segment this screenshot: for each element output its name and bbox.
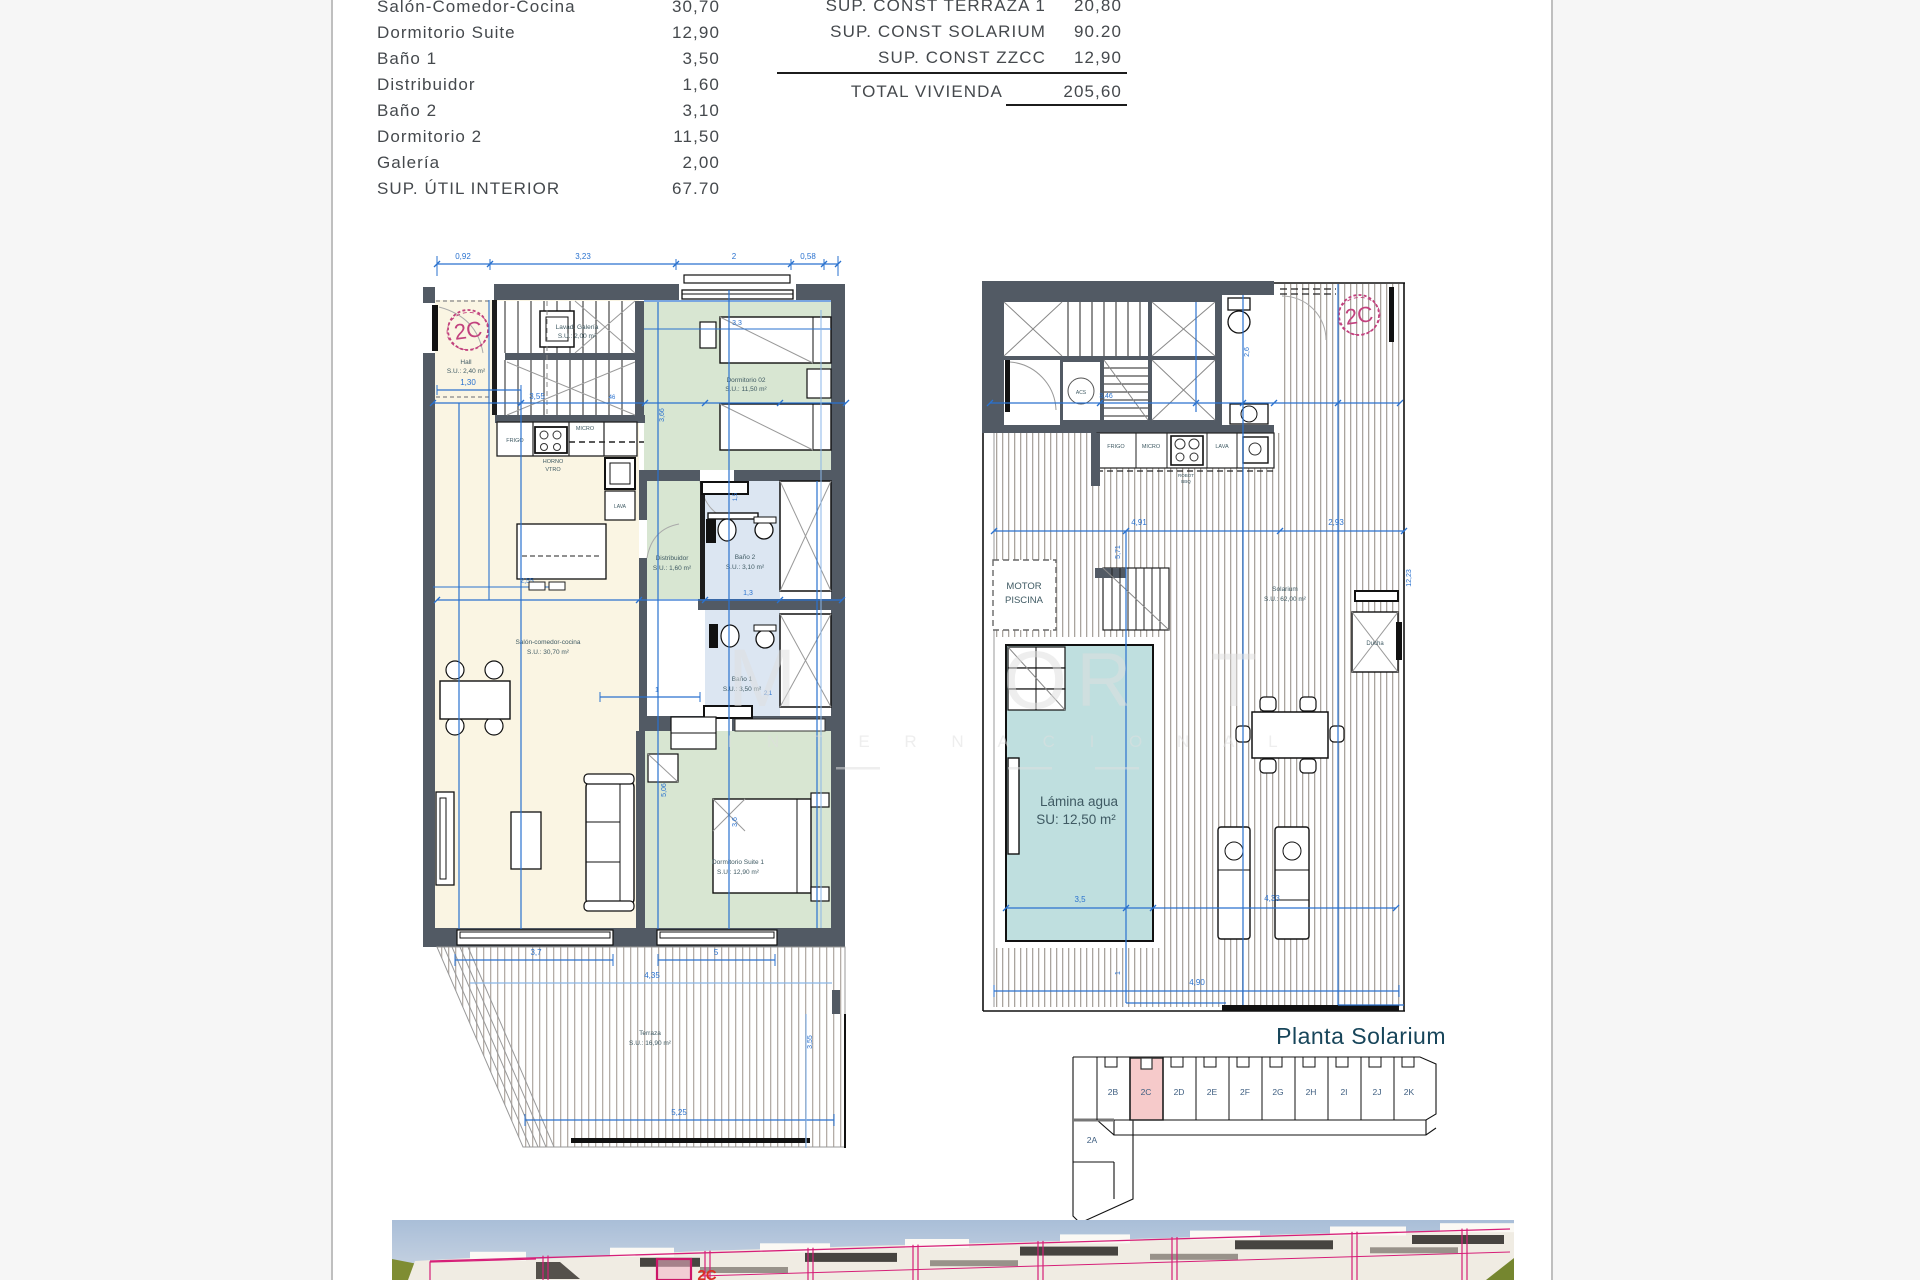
svg-text:T: T: [1211, 638, 1257, 723]
svg-text:12,23: 12,23: [1406, 569, 1413, 587]
svg-text:LAVA: LAVA: [1215, 444, 1229, 450]
svg-text:S.U.: 1,60 m²: S.U.: 1,60 m²: [653, 565, 692, 572]
svg-text:46: 46: [609, 395, 616, 401]
svg-text:MICRO: MICRO: [1142, 444, 1161, 450]
svg-text:4,91: 4,91: [1131, 518, 1147, 527]
svg-text:1,3: 1,3: [743, 590, 753, 597]
svg-text:Baño 2: Baño 2: [735, 554, 756, 561]
svg-text:2B: 2B: [1108, 1087, 1119, 1097]
svg-text:Lámina agua: Lámina agua: [1040, 794, 1119, 809]
svg-text:Solarium: Solarium: [1272, 586, 1298, 593]
svg-text:3,3: 3,3: [732, 320, 742, 327]
svg-text:Distribuidor: Distribuidor: [656, 555, 690, 562]
svg-text:S.U.: 62,00 m²: S.U.: 62,00 m²: [1264, 596, 1307, 603]
svg-text:2J: 2J: [1373, 1087, 1382, 1097]
svg-text:HORNO: HORNO: [543, 459, 564, 465]
svg-text:S.U.: 11,50 m²: S.U.: 11,50 m²: [725, 386, 767, 393]
svg-text:ROBOT: ROBOT: [1178, 473, 1194, 478]
svg-text:Hall: Hall: [460, 359, 472, 366]
svg-text:2D: 2D: [1174, 1087, 1185, 1097]
svg-text:S.U.: 12,90 m²: S.U.: 12,90 m²: [717, 869, 760, 876]
svg-text:2C: 2C: [1141, 1087, 1152, 1097]
svg-text:3,23: 3,23: [575, 252, 591, 261]
svg-text:3,6: 3,6: [732, 817, 739, 827]
svg-text:Dormitorio Suite 1: Dormitorio Suite 1: [712, 859, 764, 866]
svg-text:O: O: [1003, 635, 1067, 726]
svg-text:S.U.: 3,10 m²: S.U.: 3,10 m²: [726, 564, 765, 571]
svg-text:MOTOR: MOTOR: [1006, 581, 1041, 592]
svg-text:2A: 2A: [1087, 1135, 1098, 1145]
svg-text:2C: 2C: [1343, 301, 1374, 330]
svg-text:FRIGO: FRIGO: [506, 438, 524, 444]
svg-text:0,92: 0,92: [455, 252, 471, 261]
svg-text:ACS: ACS: [1076, 390, 1087, 396]
svg-text:S.U.: 2,40 m²: S.U.: 2,40 m²: [447, 368, 486, 375]
svg-text:1: 1: [1115, 971, 1122, 975]
svg-text:2G: 2G: [1272, 1087, 1283, 1097]
svg-text:2,6: 2,6: [1244, 347, 1251, 357]
svg-text:3,46: 3,46: [1099, 393, 1113, 400]
svg-text:2C: 2C: [697, 1267, 716, 1280]
svg-text:Salón-comedor-cocina: Salón-comedor-cocina: [515, 639, 580, 646]
svg-text:VTRO: VTRO: [545, 467, 561, 473]
svg-text:S.U.: 30,70 m²: S.U.: 30,70 m²: [527, 649, 570, 656]
svg-text:2H: 2H: [1306, 1087, 1317, 1097]
svg-text:5: 5: [714, 948, 719, 957]
svg-text:S.U.: 2,00 m²: S.U.: 2,00 m²: [558, 333, 597, 340]
svg-text:R: R: [1077, 638, 1132, 723]
svg-text:2C: 2C: [452, 316, 483, 345]
svg-text:Planta Solarium: Planta Solarium: [1276, 1023, 1446, 1049]
svg-text:S.U.: 16,90 m²: S.U.: 16,90 m²: [629, 1040, 672, 1047]
svg-text:BBQ: BBQ: [1181, 479, 1191, 484]
svg-text:Ducha: Ducha: [1366, 641, 1384, 647]
svg-text:Lavad. Galería: Lavad. Galería: [556, 324, 599, 331]
svg-text:5,71: 5,71: [1115, 545, 1122, 559]
svg-text:4,33: 4,33: [1264, 894, 1280, 903]
svg-text:5,25: 5,25: [671, 1108, 687, 1117]
svg-text:3,55: 3,55: [529, 392, 545, 401]
svg-text:1,30: 1,30: [460, 378, 476, 387]
svg-text:3,5: 3,5: [1074, 895, 1086, 904]
svg-text:FRIGO: FRIGO: [1107, 444, 1125, 450]
svg-text:4,35: 4,35: [644, 971, 660, 980]
svg-text:2E: 2E: [1207, 1087, 1218, 1097]
svg-text:2,93: 2,93: [1328, 518, 1344, 527]
svg-text:I N T E R N A C I O N A L: I N T E R N A C I O N A L: [727, 732, 1292, 751]
svg-text:LAVA: LAVA: [614, 504, 627, 510]
svg-text:5,06: 5,06: [661, 783, 668, 797]
svg-text:2K: 2K: [1404, 1087, 1415, 1097]
svg-text:2: 2: [732, 252, 737, 261]
svg-text:0,58: 0,58: [800, 252, 816, 261]
svg-text:Dormitorio 02: Dormitorio 02: [726, 377, 765, 384]
svg-text:Terraza: Terraza: [639, 1030, 661, 1037]
svg-text:3,66: 3,66: [659, 408, 666, 422]
svg-text:M: M: [728, 633, 796, 724]
svg-text:1,5: 1,5: [733, 492, 739, 501]
svg-text:3,7: 3,7: [530, 948, 542, 957]
svg-text:PISCINA: PISCINA: [1005, 595, 1044, 606]
svg-text:4,90: 4,90: [1189, 978, 1205, 987]
svg-text:3,55: 3,55: [807, 1035, 814, 1049]
svg-text:MICRO: MICRO: [576, 426, 595, 432]
svg-text:2I: 2I: [1340, 1087, 1347, 1097]
svg-text:2F: 2F: [1240, 1087, 1250, 1097]
svg-text:SU: 12,50 m²: SU: 12,50 m²: [1036, 812, 1116, 827]
